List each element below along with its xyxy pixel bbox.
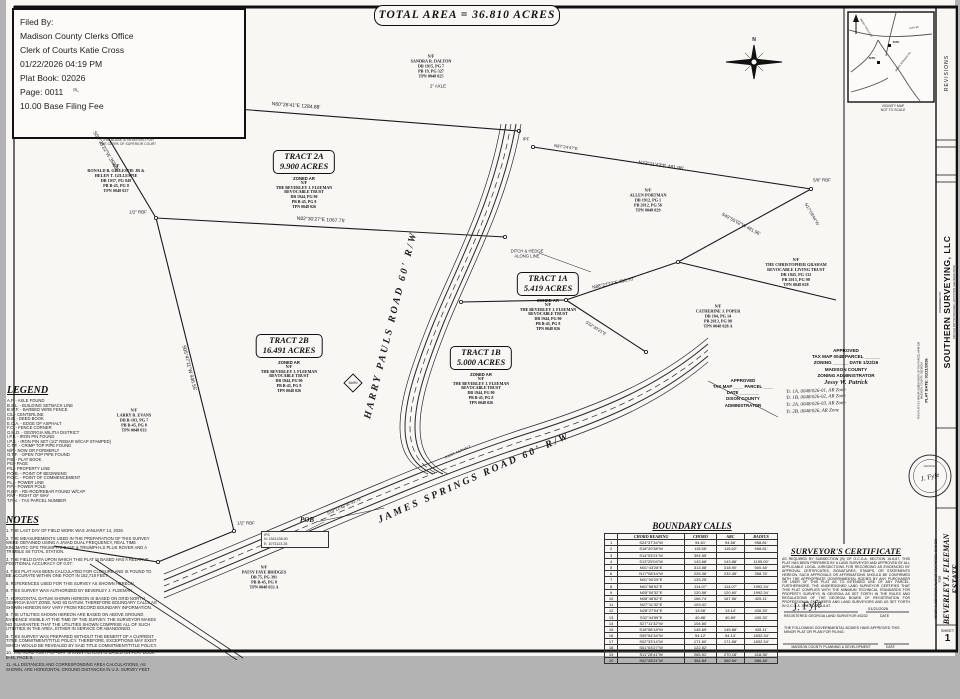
tract-label-group: TRACT 1A5.419 ACRESZONED ARN/FTHE BEVERL… [517,272,579,332]
client-name: BEVERLEY J. FLEEMAN [942,459,951,699]
adjoining-owner-label: N/FCATHERINE J. POPERDB 184, PG 14PB 201… [696,303,740,328]
tract-acres: 5.000 ACRES [457,358,505,368]
legend-items: A.F. - AXLE FOUNDB.S.L. - BUILDING SETBA… [7,399,127,503]
madison-approval-block: APPROVEDTAX MAP 0048 PARCEL ______ZONING… [786,348,906,415]
plat-annotation: ALONG LINE [514,254,539,259]
certificate-date: 01/21/2026 [868,606,888,611]
tract-acres: 9.900 ACRES [280,162,328,172]
clerk-caption: THIS BLANK IS RESERVED FOR THE CLERK OF … [48,138,208,147]
filed-by-line: Page: 0011 [20,85,244,99]
other-approval-block: APPROVEDTAX MAP ____ PARCEL ____DATE ___… [706,378,780,409]
note-item: 2. THE MEASUREMENTS USED IN THE PREPARAT… [6,537,158,555]
legend-item: T.P.N. - TAX PARCEL NUMBER [7,499,127,504]
filed-by-line: Plat Book: 02026 [20,71,244,85]
plat-date-block: THIS PLAT IS A MINOR SUBDIVISION OF TAX … [918,331,929,431]
vicinity-caption-line2: NOT TO SCALE [858,108,928,112]
boundary-calls: BOUNDARY CALLS CHORD BEARINGCHORDARCRADI… [604,521,780,664]
vicinity-site2-label: SITE [869,56,876,60]
filed-by-line: Madison County Clerks Office [20,29,244,43]
tract-label-group: TRACT 2B16.491 ACRESZONED ARN/FTHE BEVER… [256,334,323,394]
filed-by-line: 10.00 Base Filing Fee [20,99,244,113]
tract-owner-line: TPN 0048 026 [256,389,323,394]
sheet-number: 1 [937,633,958,644]
note-item: 10. THE ROAD RIGHT-OF-WAY SHOWN HEREON I… [6,651,158,660]
tract-owner: N/FTHE BEVERLEY J. FLEEMANREVOCABLE TRUS… [256,365,323,394]
adjoining-owner-line: TPN 0048 033 A [242,585,287,590]
tract-acres: 5.419 ACRES [524,284,572,294]
note-item: 1. THE LAST DAY OF FIELD WORK WAS JANUAR… [6,529,158,534]
adjoining-owner-label: N/FPATSY FAYE BRIDGESDB 75, PG 391PB B-4… [242,564,287,589]
company-address: 198 OLD ROYSTON ROAD • ROYSTON, GEORGIA … [952,182,956,422]
company-block: PREPARED BY SOUTHERN SURVEYING, LLC 198 … [938,182,956,422]
tract-owner: N/FTHE BEVERLEY J. FLEEMANREVOCABLE TRUS… [517,303,579,332]
plat-annotation: BARN [349,381,358,385]
adjoining-owner-label: N/FSANDRA R. DALTONDB 1915, PG 7PB 19, P… [411,53,452,78]
filed-by-stamp: Filed By:Madison County Clerks OfficeCle… [12,8,246,139]
approval-date-label: DATE [886,645,895,649]
notes-title: NOTES [6,515,158,526]
note-item: 3. THE FIELD DATA UPON WHICH THIS PLAT I… [6,558,158,567]
revisions-label: REVISIONS [944,43,950,103]
filed-by-line: Clerk of Courts Katie Cross [20,43,244,57]
vicinity-caption: VICINITY MAP NOT TO SCALE [858,104,928,113]
notes-items: 1. THE LAST DAY OF FIELD WORK WAS JANUAR… [6,529,158,672]
north-label: N [752,37,756,43]
pob-easting: E: 1073123.26 [264,542,326,546]
surveyor-title: REGISTERED GEORGIA LAND SURVEYOR #3232 [784,614,868,618]
legend: LEGEND A.F. - AXLE FOUNDB.S.L. - BUILDIN… [7,385,127,503]
vicinity-site1-label: SITE [893,40,900,44]
vicinity-map [848,12,934,102]
tract-owner-line: TPN 0048 026 [517,327,579,332]
tract-owner-line: TPN 0048 026 [273,205,335,210]
client-name2: ESTATE [951,459,960,699]
bc-cell: 360.54' [716,657,744,663]
plat-sheet: Filed By:Madison County Clerks OfficeCle… [6,0,955,656]
adjoining-owner-line: TPN 0048 029 [630,208,667,213]
legend-title: LEGEND [7,385,127,396]
approval-note: THE FOLLOWING GOVERNMENTAL BODIES HAVE A… [784,626,902,635]
pob-coordinate-box: IPS N: 1541438.50 E: 1073123.26 [261,531,329,548]
bc-cell: 586.48' [745,657,778,663]
boundary-calls-table: CHORD BEARINGCHORDARCRADIUS 1S24°37'34"W… [604,533,778,664]
adjoining-owner-line: TPN 0048 028 [765,282,826,287]
approval-agency: MADISON COUNTY PLANNING & DEVELOPMENT [782,645,880,649]
tract-owner: N/FTHE BEVERLEY J. FLEEMANREVOCABLE TRUS… [450,377,512,406]
adjoining-owner-label: N/FLARRY R. EVANSDB B-103, PG 7PB B-45, … [117,407,151,432]
project-title-block: MINOR SUBDIVISION PLAT OF TAX PARCEL 004… [934,459,960,699]
plat-annotation: IPF [523,137,530,142]
note-item: 9. THIS SURVEY WAS PREPARED WITHOUT THE … [6,635,158,649]
company-name: SOUTHERN SURVEYING, LLC [942,182,952,422]
tract-box: TRACT 2A9.900 ACRES [273,150,335,174]
note-item: 4. THIS PLAT HAS BEEN CALCULATED FOR CLO… [6,570,158,579]
plat-annotation: 5/8" RBF [813,178,831,183]
plat-annotation: 1/2" RBF [237,521,255,526]
approval-line: ADMINISTRATOR [706,403,780,409]
filed-by-line: 01/22/2026 04:19 PM [20,57,244,71]
surveyor-certificate: SURVEYOR'S CERTIFICATE AS REQUIRED BY SU… [782,546,910,609]
tract-box: TRACT 1B5.000 ACRES [450,346,512,370]
notes: NOTES 1. THE LAST DAY OF FIELD WORK WAS … [6,515,158,675]
plat-date: PLAT DATE: 01/21/2026 [924,331,929,431]
note-item: 6. THIS SURVEY WAS AUTHORIZED BY BEVERLE… [6,589,158,594]
sheet-number-cell: SHEET 1 [937,626,958,644]
filed-by-line: Filed By: [20,15,244,29]
bc-cell: S02°28'21"W [618,657,685,663]
note-item: 11. ALL DISTANCES AND CORRESPONDING AREA… [6,663,158,672]
adjoining-owner-line: TPN 0048 033 [117,428,151,433]
total-area-box: TOTAL AREA = 36.810 ACRES [374,5,560,26]
adjoining-owner-line: TPN 0048 028 A [696,324,740,329]
tract-owner: N/FTHE BEVERLEY J. FLEEMANREVOCABLE TRUS… [273,181,335,210]
tract-label-group: TRACT 2A9.900 ACRESZONED ARN/FTHE BEVERL… [273,150,335,210]
tract-box: TRACT 1A5.419 ACRES [517,272,579,296]
note-item: 7. HORIZONTAL DATUM SHOWN HEREON IS BASE… [6,597,158,611]
plat-annotation: POB [300,516,314,524]
bc-cell: 20 [605,657,618,663]
note-item: 8. THE UTILITIES SHOWN HEREON ARE BASED … [6,613,158,631]
certificate-date-label: DATE [880,614,889,618]
north-arrow-icon [726,45,782,79]
tract-label-group: TRACT 1B5.000 ACRESZONED ARN/FTHE BEVERL… [450,346,512,406]
adjoining-owner-line: TPN 0048 025 [411,74,452,79]
tract-acres: 16.491 ACRES [263,346,316,356]
bc-row: 20S02°28'21"W354.84'360.54'586.48' [605,657,778,663]
adjoining-owner-label: N/FTHE CHRISTOPHER GRAHAMREVOCABLE LIVIN… [765,257,826,287]
tract-owner-line: TPN 0048 026 [450,401,512,406]
clerk-caption-line2: THE CLERK OF SUPERIOR COURT [48,142,208,146]
adjoining-owner-label: N/FALLEN PORTMANDB 1912, PG 1PB 2012, PG… [630,187,667,212]
plat-annotation: PL [73,88,78,93]
tract-box: TRACT 2B16.491 ACRES [256,334,323,358]
certificate-title: SURVEYOR'S CERTIFICATE [782,546,910,556]
adjoining-owner-line: TPN 0048 027 [87,188,144,193]
harry-pauls-road-lines [400,124,521,474]
plat-annotation: 1/2" RBF [129,210,147,215]
note-item: 5. REFERENCES USED FOR THIS SURVEY AS SH… [6,582,158,587]
bc-cell: 354.84' [685,657,717,663]
plat-annotation: 2" AXLE [430,84,446,89]
boundary-calls-title: BOUNDARY CALLS [604,521,780,531]
